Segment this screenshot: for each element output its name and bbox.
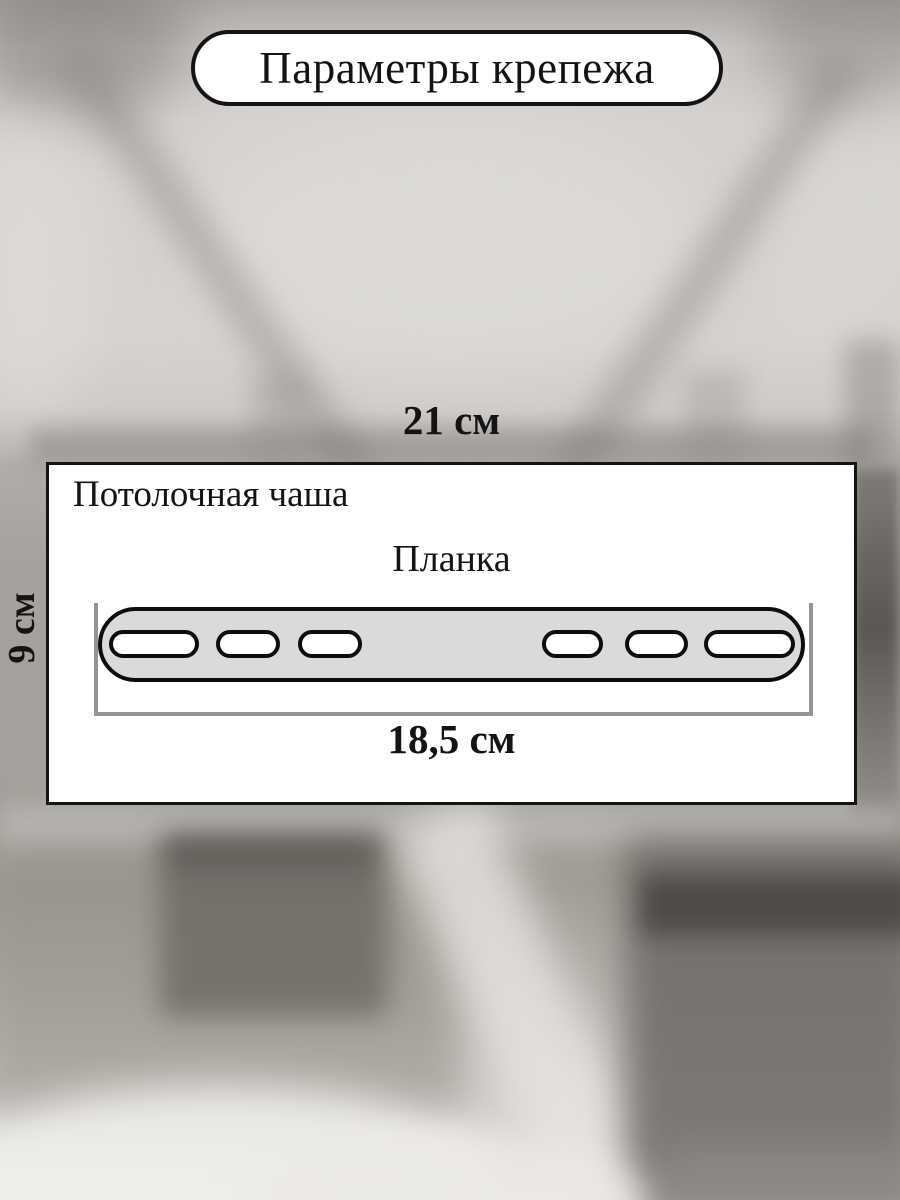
bg-blob — [160, 835, 388, 1017]
title-badge: Параметры крепежа — [191, 30, 723, 106]
slot-hole — [216, 630, 280, 658]
bg-blob — [660, 1150, 900, 1200]
bg-blob — [625, 840, 900, 1200]
fastening-parameters-infographic: Параметры крепежа 21 см 9 см Потолочная … — [0, 0, 900, 1200]
dimension-side-label: 9 см — [0, 553, 45, 703]
bg-blob — [0, 855, 460, 1135]
diagram-panel: Потолочная чаша Планка 18,5 см — [46, 462, 857, 805]
dimension-top-label: 21 см — [46, 398, 857, 443]
slot-hole — [542, 630, 603, 658]
bg-blob — [640, 875, 900, 935]
bg-blob — [0, 0, 190, 120]
bg-blob — [0, 806, 900, 846]
plank-shape — [98, 607, 805, 682]
bg-blob — [734, 48, 900, 373]
bg-blob — [250, 1140, 650, 1200]
slot-hole — [625, 630, 688, 658]
slot-hole — [704, 630, 795, 658]
slot-hole — [298, 630, 362, 658]
title-text: Параметры крепежа — [259, 42, 655, 94]
bg-blob — [200, 110, 700, 380]
ceiling-cup-label: Потолочная чаша — [73, 473, 348, 517]
bg-blob — [760, 0, 900, 120]
bg-blob — [0, 1085, 500, 1200]
bg-blob — [391, 796, 657, 1200]
bg-blob — [852, 470, 900, 820]
slot-hole — [109, 630, 199, 658]
bg-blob — [0, 120, 100, 420]
dimension-bottom-label: 18,5 см — [49, 717, 854, 762]
plank-label: Планка — [49, 537, 854, 583]
